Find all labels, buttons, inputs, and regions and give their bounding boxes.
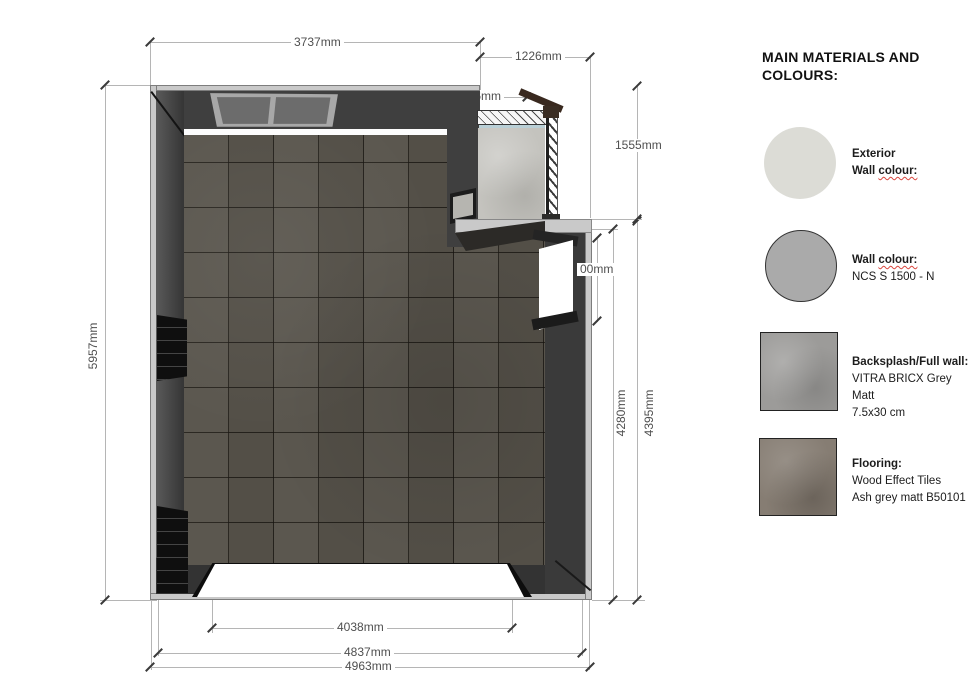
legend-item-value2: Ash grey matt B50101 <box>852 490 966 507</box>
balcony-floor <box>478 128 545 219</box>
legend-item-subtitle: Wall colour: <box>852 163 917 180</box>
dim-ext-line <box>582 600 583 656</box>
railing-post-top <box>543 106 559 118</box>
swatch-flooring <box>759 438 837 516</box>
legend-item-value: VITRA BRICX Grey Matt <box>852 371 975 405</box>
floor-plan-sheet: { "legend": { "title": "MAIN MATERIALS A… <box>0 0 975 697</box>
dim-label-interior-height-outer: 4395mm <box>642 383 656 443</box>
legend-item-title: Flooring: <box>852 456 966 473</box>
label-text: Wall <box>852 254 878 266</box>
dim-ext-line <box>480 42 481 90</box>
dim-ext-line <box>158 600 159 656</box>
dim-label-interior-height: 4280mm <box>614 383 628 443</box>
dim-label-top-width: 3737mm <box>291 36 344 49</box>
swatch-exterior-wall <box>764 127 836 199</box>
legend-item-value: Wood Effect Tiles <box>852 473 966 490</box>
dim-label-bottom-outer: 4963mm <box>342 660 395 673</box>
label-text: Wall <box>852 165 878 177</box>
wall-radiator-upper <box>157 315 187 381</box>
dim-line-interior-height-outer <box>637 222 638 600</box>
wall-radiator-lower <box>157 506 188 593</box>
legend-item-value2: 7.5x30 cm <box>852 405 975 422</box>
legend-item-title: Backsplash/Full wall: <box>852 354 975 371</box>
dim-label-bottom-inner: 4837mm <box>341 646 394 659</box>
legend-item-exterior: Exterior Wall colour: <box>852 146 917 180</box>
dim-label-bottom-opening: 4038mm <box>334 621 387 634</box>
balcony-railing <box>546 110 558 220</box>
bottom-door-opening <box>197 564 524 597</box>
legend-title: MAIN MATERIALS AND COLOURS: <box>762 48 952 84</box>
dim-ext-line <box>151 600 152 670</box>
legend-item-value: NCS S 1500 - N <box>852 269 934 286</box>
swatch-backsplash <box>760 332 838 411</box>
legend-item-wall: Wall colour: NCS S 1500 - N <box>852 252 934 286</box>
dim-ext-line <box>100 600 157 601</box>
dim-line-balcony-depth <box>637 85 638 222</box>
legend-item-flooring: Flooring: Wood Effect Tiles Ash grey mat… <box>852 456 966 507</box>
dim-ext-line <box>590 57 591 218</box>
dim-line-left-height <box>105 85 106 600</box>
dim-line-right-window <box>597 237 598 322</box>
legend-item-title: Exterior <box>852 146 917 163</box>
dim-ext-line <box>150 42 151 85</box>
dim-label-balcony-depth: 1555mm <box>612 139 665 152</box>
balcony-wall-window <box>453 193 473 219</box>
legend-item-title: Wall colour: <box>852 252 934 269</box>
dim-label-balcony-width: 1226mm <box>512 50 565 63</box>
dim-label-left-height: 5957mm <box>86 316 100 376</box>
outer-wall-right <box>585 219 592 600</box>
label-text-squiggle: colour: <box>878 254 917 266</box>
dim-label-right-window: 00mm <box>577 263 616 276</box>
ceiling-window <box>206 92 342 129</box>
dim-ext-line <box>589 600 590 670</box>
swatch-wall-colour <box>765 230 837 302</box>
label-text-squiggle: colour: <box>878 165 917 177</box>
legend-item-backsplash: Backsplash/Full wall: VITRA BRICX Grey M… <box>852 354 975 422</box>
glass-roof-hatch <box>477 110 548 125</box>
